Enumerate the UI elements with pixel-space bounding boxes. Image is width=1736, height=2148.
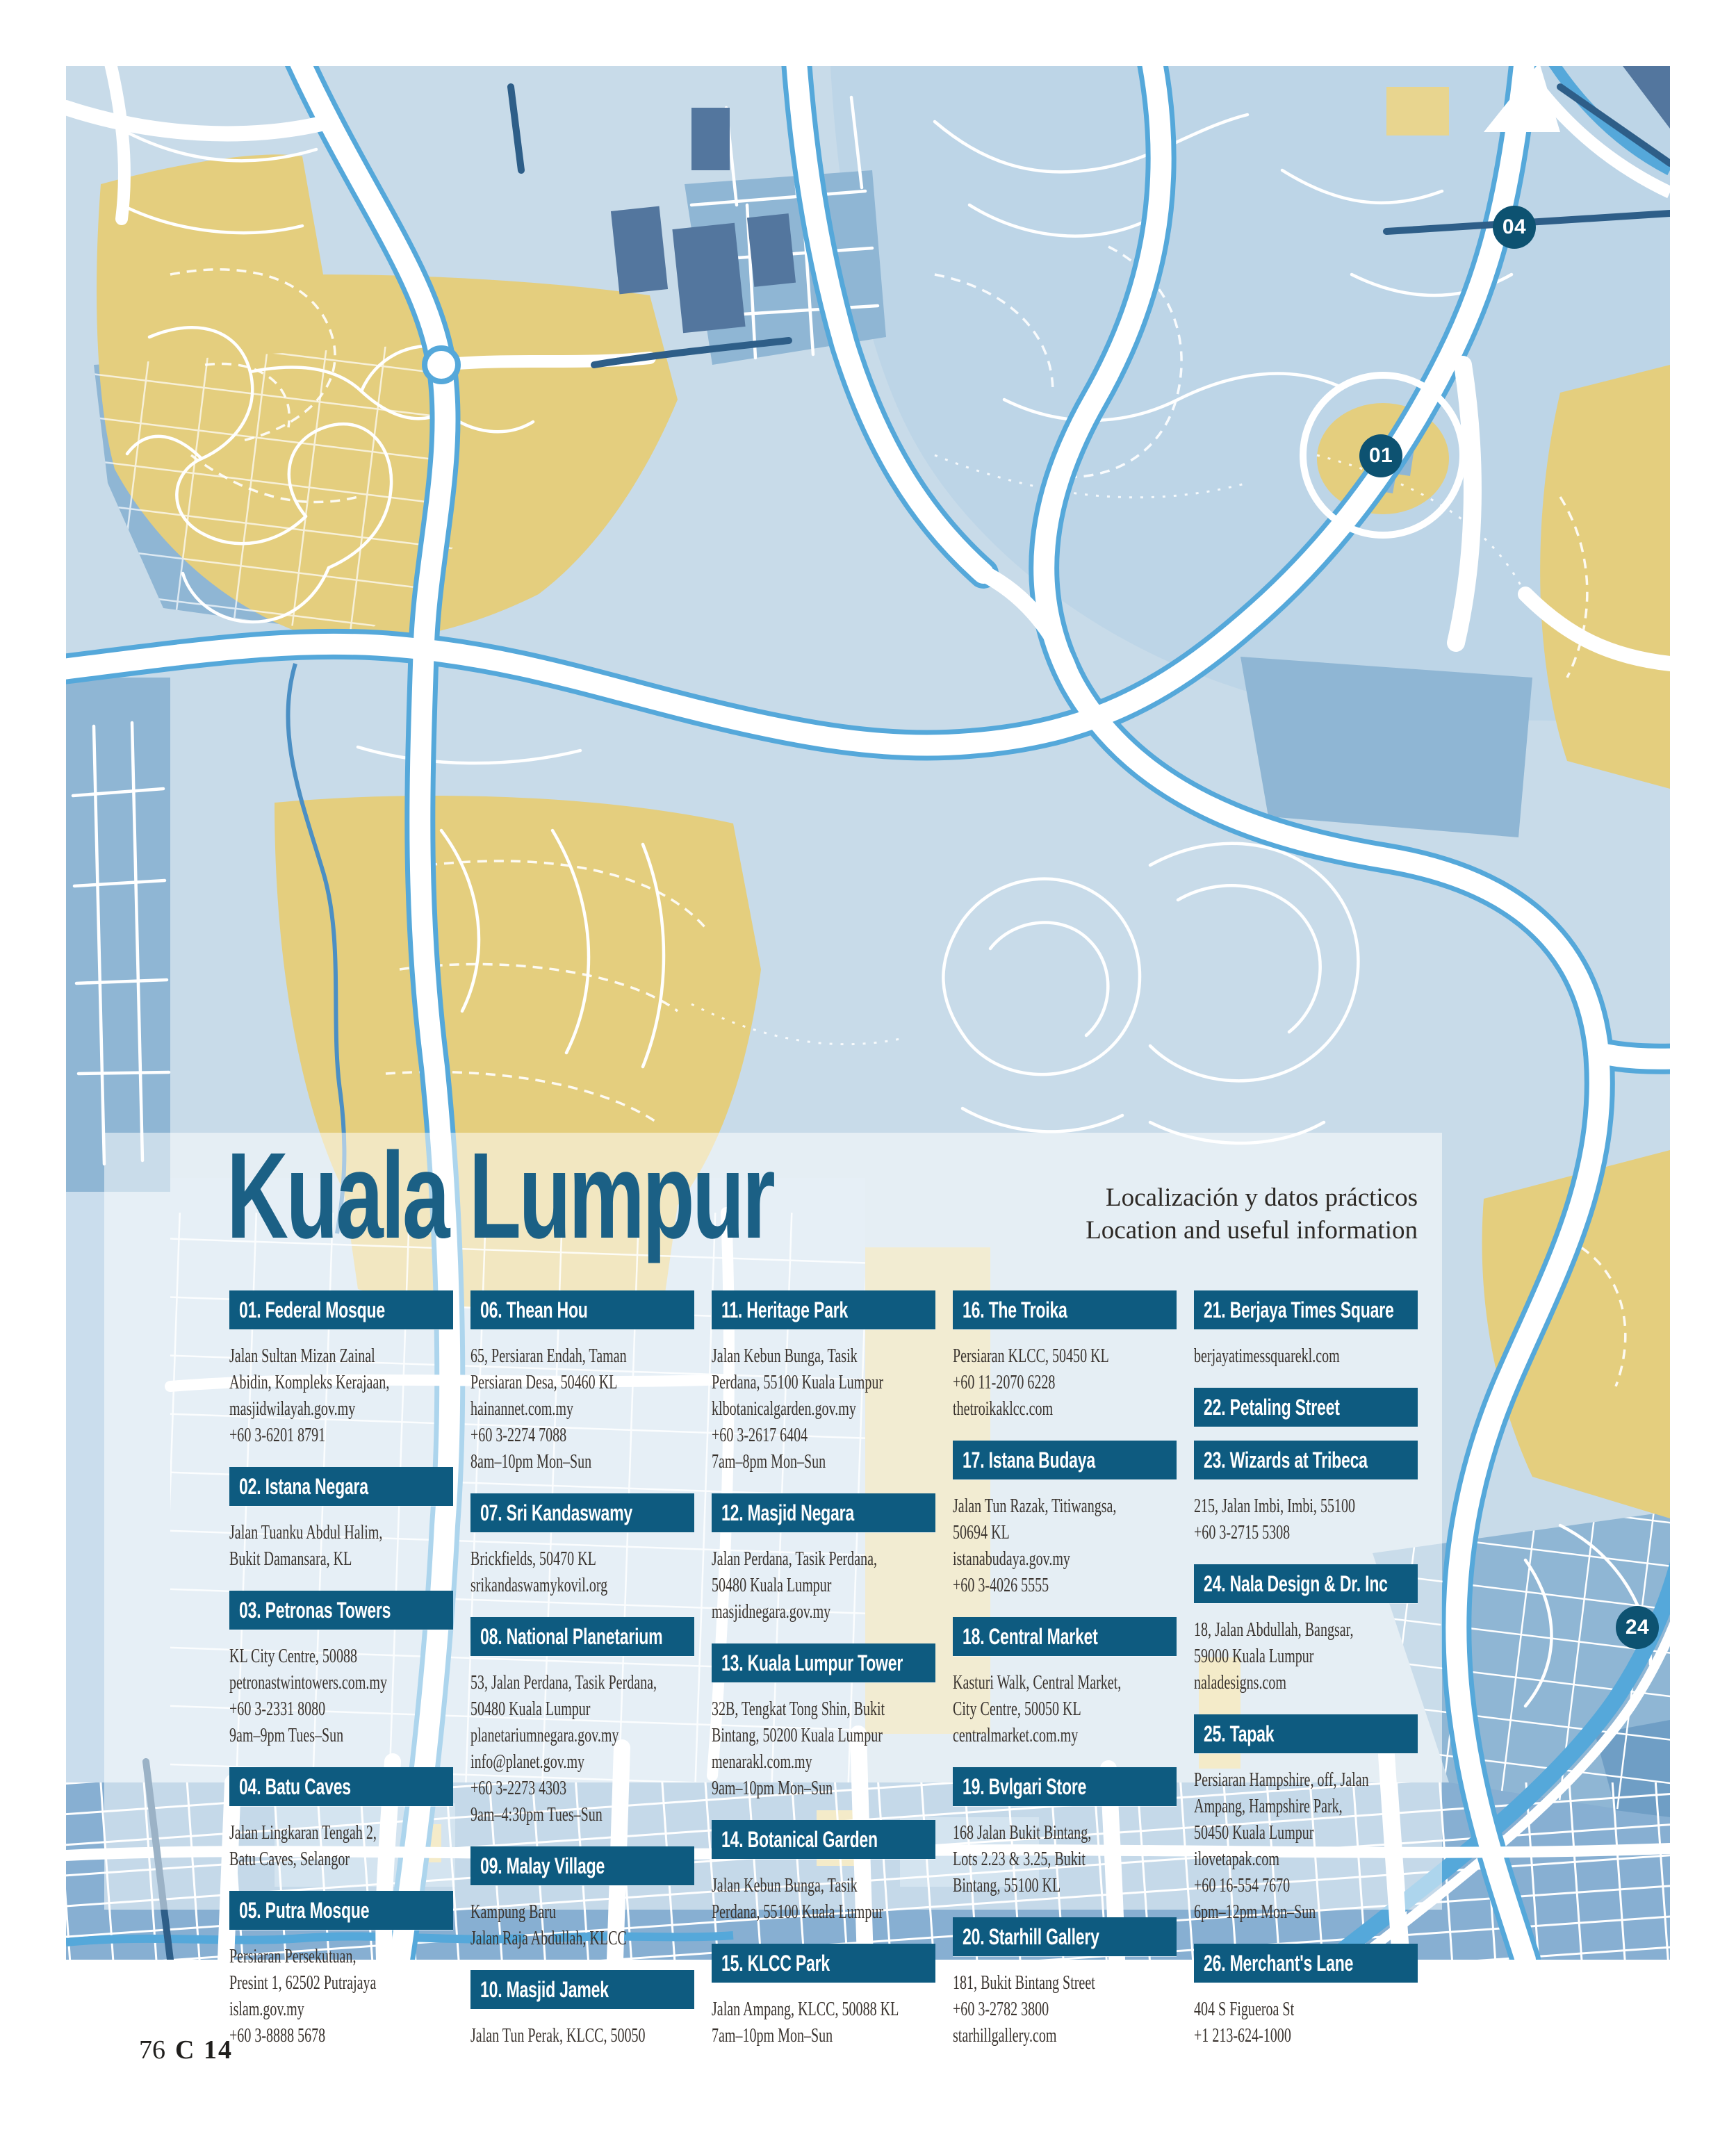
entry-title: 22. Petaling Street — [1204, 1395, 1340, 1420]
entry-details: Jalan Kebun Bunga, Tasik Perdana, 55100 … — [712, 1343, 935, 1475]
poi-entry: 05. Putra Mosque Persiaran Persekutuan, … — [229, 1891, 453, 2049]
entry-title-chip: 08. National Planetarium — [470, 1617, 694, 1656]
poi-entry: 15. KLCC Park Jalan Ampang, KLCC, 50088 … — [712, 1944, 935, 2049]
entry-details: 215, Jalan Imbi, Imbi, 55100 +60 3-2715 … — [1194, 1493, 1418, 1546]
entry-title-chip: 21. Berjaya Times Square — [1194, 1290, 1418, 1329]
entry-details: Persiaran KLCC, 50450 KL +60 11-2070 622… — [953, 1343, 1177, 1423]
poi-entry: 04. Batu Caves Jalan Lingkaran Tengah 2,… — [229, 1767, 453, 1873]
entry-details: 181, Bukit Bintang Street +60 3-2782 380… — [953, 1970, 1177, 2049]
poi-entry: 11. Heritage Park Jalan Kebun Bunga, Tas… — [712, 1290, 935, 1475]
poi-entry: 19. Bvlgari Store 168 Jalan Bukit Bintan… — [953, 1767, 1177, 1899]
entry-title: 07. Sri Kandaswamy — [480, 1500, 632, 1526]
entry-details: 168 Jalan Bukit Bintang, Lots 2.23 & 3.2… — [953, 1820, 1177, 1899]
entry-details: 53, Jalan Perdana, Tasik Perdana, 50480 … — [470, 1670, 694, 1828]
poi-listing: 01. Federal Mosque Jalan Sultan Mizan Za… — [229, 1290, 1419, 2067]
entry-details: Jalan Tuanku Abdul Halim, Bukit Damansar… — [229, 1520, 453, 1573]
entry-details: Jalan Tun Razak, Titiwangsa, 50694 KL is… — [953, 1493, 1177, 1599]
entry-title: 03. Petronas Towers — [239, 1598, 391, 1623]
poi-entry: 22. Petaling Street — [1194, 1388, 1418, 1427]
entry-title-chip: 23. Wizards at Tribeca — [1194, 1441, 1418, 1479]
entry-title: 02. Istana Negara — [239, 1474, 368, 1500]
entry-title-chip: 02. Istana Negara — [229, 1467, 453, 1506]
entry-details: Jalan Sultan Mizan Zainal Abidin, Komple… — [229, 1343, 453, 1449]
poi-entry: 17. Istana Budaya Jalan Tun Razak, Titiw… — [953, 1441, 1177, 1599]
entry-details: Kampung Baru Jalan Raja Abdullah, KLCC — [470, 1899, 694, 1952]
entry-title: 04. Batu Caves — [239, 1774, 351, 1800]
poi-entry: 24. Nala Design & Dr. Inc 18, Jalan Abdu… — [1194, 1564, 1418, 1696]
entry-details: Persiaran Hampshire, off, Jalan Ampang, … — [1194, 1767, 1418, 1926]
entry-title-chip: 17. Istana Budaya — [953, 1441, 1177, 1479]
map-marker-01: 01 — [1359, 434, 1402, 477]
entry-title: 01. Federal Mosque — [239, 1297, 385, 1323]
subtitle-en: Location and useful information — [1086, 1214, 1418, 1247]
entry-title-chip: 19. Bvlgari Store — [953, 1767, 1177, 1806]
poi-entry: 10. Masjid Jamek Jalan Tun Perak, KLCC, … — [470, 1970, 694, 2049]
entry-details: 18, Jalan Abdullah, Bangsar, 59000 Kuala… — [1194, 1617, 1418, 1696]
entry-details: Brickfields, 50470 KL srikandaswamykovil… — [470, 1546, 694, 1599]
entry-title: 08. National Planetarium — [480, 1624, 662, 1650]
poi-column-3: 11. Heritage Park Jalan Kebun Bunga, Tas… — [712, 1290, 935, 2067]
entry-title: 21. Berjaya Times Square — [1204, 1297, 1394, 1323]
entry-title-chip: 03. Petronas Towers — [229, 1591, 453, 1630]
entry-title-chip: 22. Petaling Street — [1194, 1388, 1418, 1427]
entry-title: 16. The Troika — [963, 1297, 1067, 1323]
entry-title-chip: 09. Malay Village — [470, 1846, 694, 1885]
page-footer: 76C 14 — [139, 2035, 233, 2065]
entry-title-chip: 07. Sri Kandaswamy — [470, 1493, 694, 1532]
poi-column-4: 16. The Troika Persiaran KLCC, 50450 KL … — [953, 1290, 1177, 2067]
poi-entry: 06. Thean Hou 65, Persiaran Endah, Taman… — [470, 1290, 694, 1475]
map-marker-04: 04 — [1493, 206, 1536, 249]
map-marker-24: 24 — [1616, 1606, 1659, 1649]
entry-title-chip: 04. Batu Caves — [229, 1767, 453, 1806]
poi-column-2: 06. Thean Hou 65, Persiaran Endah, Taman… — [470, 1290, 694, 2067]
entry-title: 17. Istana Budaya — [963, 1448, 1095, 1473]
entry-title: 11. Heritage Park — [721, 1297, 848, 1323]
entry-details: berjayatimessquarekl.com — [1194, 1343, 1418, 1370]
entry-title: 26. Merchant's Lane — [1204, 1951, 1353, 1976]
entry-title-chip: 26. Merchant's Lane — [1194, 1944, 1418, 1983]
entry-details: 32B, Tengkat Tong Shin, Bukit Bintang, 5… — [712, 1696, 935, 1802]
entry-title: 06. Thean Hou — [480, 1297, 588, 1323]
entry-title: 25. Tapak — [1204, 1721, 1274, 1747]
entry-title: 15. KLCC Park — [721, 1951, 830, 1976]
poi-entry: 14. Botanical Garden Jalan Kebun Bunga, … — [712, 1820, 935, 1926]
entry-details: Jalan Tun Perak, KLCC, 50050 — [470, 2023, 694, 2049]
entry-title: 12. Masjid Negara — [721, 1500, 854, 1526]
subtitle-es: Localización y datos prácticos — [1086, 1181, 1418, 1214]
entry-details: Jalan Lingkaran Tengah 2, Batu Caves, Se… — [229, 1820, 453, 1873]
poi-entry: 21. Berjaya Times Square berjayatimessqu… — [1194, 1290, 1418, 1370]
entry-title: 19. Bvlgari Store — [963, 1774, 1086, 1800]
entry-title: 13. Kuala Lumpur Tower — [721, 1650, 903, 1676]
section-code: C 14 — [175, 2035, 233, 2065]
entry-title: 18. Central Market — [963, 1624, 1098, 1650]
entry-details: Kasturi Walk, Central Market, City Centr… — [953, 1670, 1177, 1749]
entry-title-chip: 15. KLCC Park — [712, 1944, 935, 1983]
page-title: Kuala Lumpur — [227, 1137, 773, 1255]
poi-entry: 25. Tapak Persiaran Hampshire, off, Jala… — [1194, 1714, 1418, 1926]
poi-entry: 01. Federal Mosque Jalan Sultan Mizan Za… — [229, 1290, 453, 1449]
entry-title: 10. Masjid Jamek — [480, 1977, 609, 2003]
poi-entry: 16. The Troika Persiaran KLCC, 50450 KL … — [953, 1290, 1177, 1423]
poi-entry: 23. Wizards at Tribeca 215, Jalan Imbi, … — [1194, 1441, 1418, 1546]
entry-title: 24. Nala Design & Dr. Inc — [1204, 1571, 1388, 1597]
entry-title: 14. Botanical Garden — [721, 1827, 878, 1853]
entry-title-chip: 05. Putra Mosque — [229, 1891, 453, 1930]
entry-details: 404 S Figueroa St +1 213-624-1000 — [1194, 1997, 1418, 2049]
entry-title-chip: 01. Federal Mosque — [229, 1290, 453, 1329]
entry-title-chip: 06. Thean Hou — [470, 1290, 694, 1329]
entry-title-chip: 16. The Troika — [953, 1290, 1177, 1329]
entry-details: 65, Persiaran Endah, Taman Persiaran Des… — [470, 1343, 694, 1475]
page-number: 76 — [139, 2035, 165, 2065]
entry-details: KL City Centre, 50088 petronastwintowers… — [229, 1643, 453, 1749]
poi-entry: 08. National Planetarium 53, Jalan Perda… — [470, 1617, 694, 1828]
poi-entry: 26. Merchant's Lane 404 S Figueroa St +1… — [1194, 1944, 1418, 2049]
entry-title-chip: 20. Starhill Gallery — [953, 1917, 1177, 1956]
poi-entry: 07. Sri Kandaswamy Brickfields, 50470 KL… — [470, 1493, 694, 1599]
poi-entry: 12. Masjid Negara Jalan Perdana, Tasik P… — [712, 1493, 935, 1625]
entry-title-chip: 18. Central Market — [953, 1617, 1177, 1656]
entry-details: Jalan Ampang, KLCC, 50088 KL 7am–10pm Mo… — [712, 1997, 935, 2049]
entry-title: 05. Putra Mosque — [239, 1898, 369, 1924]
entry-title-chip: 24. Nala Design & Dr. Inc — [1194, 1564, 1418, 1603]
entry-title-chip: 12. Masjid Negara — [712, 1493, 935, 1532]
subtitle: Localización y datos prácticos Location … — [1086, 1181, 1418, 1247]
entry-details: Jalan Perdana, Tasik Perdana, 50480 Kual… — [712, 1546, 935, 1625]
poi-column-5: 21. Berjaya Times Square berjayatimessqu… — [1194, 1290, 1418, 2067]
poi-entry: 20. Starhill Gallery 181, Bukit Bintang … — [953, 1917, 1177, 2049]
poi-entry: 18. Central Market Kasturi Walk, Central… — [953, 1617, 1177, 1749]
entry-details: Jalan Kebun Bunga, Tasik Perdana, 55100 … — [712, 1873, 935, 1926]
entry-title-chip: 14. Botanical Garden — [712, 1820, 935, 1859]
poi-entry: 13. Kuala Lumpur Tower 32B, Tengkat Tong… — [712, 1643, 935, 1802]
entry-title: 23. Wizards at Tribeca — [1204, 1448, 1368, 1473]
entry-title-chip: 25. Tapak — [1194, 1714, 1418, 1753]
entry-title-chip: 13. Kuala Lumpur Tower — [712, 1643, 935, 1682]
entry-title: 20. Starhill Gallery — [963, 1924, 1099, 1950]
poi-entry: 03. Petronas Towers KL City Centre, 5008… — [229, 1591, 453, 1749]
entry-title-chip: 10. Masjid Jamek — [470, 1970, 694, 2009]
poi-column-1: 01. Federal Mosque Jalan Sultan Mizan Za… — [229, 1290, 453, 2067]
entry-title-chip: 11. Heritage Park — [712, 1290, 935, 1329]
entry-details: Persiaran Persekutuan, Presint 1, 62502 … — [229, 1944, 453, 2049]
entry-title: 09. Malay Village — [480, 1853, 605, 1879]
poi-entry: 02. Istana Negara Jalan Tuanku Abdul Hal… — [229, 1467, 453, 1573]
poi-entry: 09. Malay Village Kampung Baru Jalan Raj… — [470, 1846, 694, 1952]
